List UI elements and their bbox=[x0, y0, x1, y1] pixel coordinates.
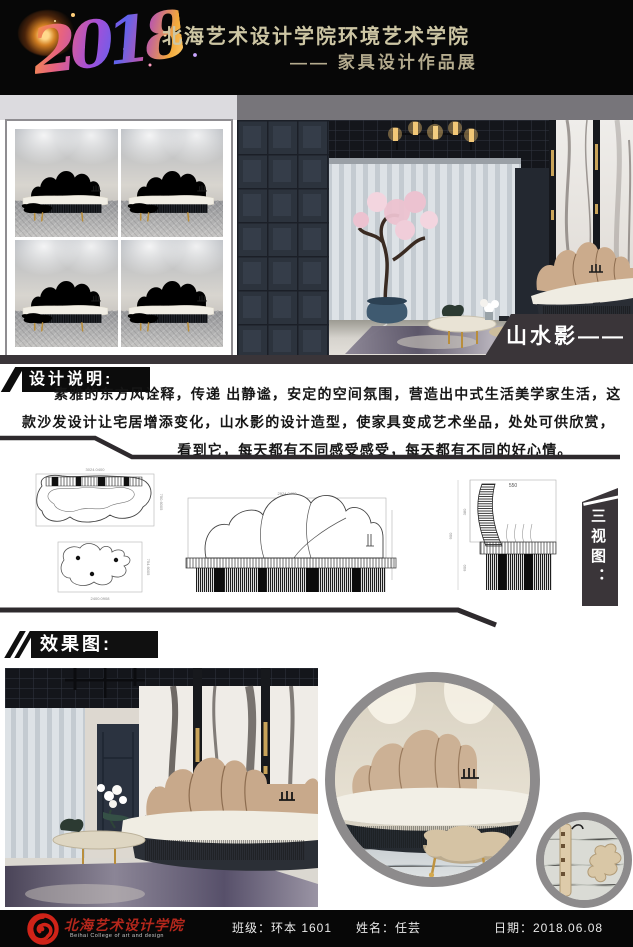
footer-school-name-en: Beihai College of art and design bbox=[70, 933, 164, 939]
seat-plan-drawing: 2400.0908 754.6005 bbox=[58, 542, 151, 601]
exhibition-subtitle: —— 家具设计作品展 bbox=[290, 48, 478, 73]
footer-class-field: 班级：环本 1601 bbox=[232, 910, 332, 947]
footer-name-field: 姓名：任芸 bbox=[356, 910, 421, 947]
side-view-drawing: 550 900 380 600 bbox=[448, 480, 556, 590]
svg-text:3024.0400: 3024.0400 bbox=[86, 467, 106, 472]
school-logo-icon bbox=[26, 912, 60, 946]
footer-school-name-cn: 北海艺术设计学院 bbox=[64, 915, 184, 935]
design-notes-line2: 款沙发设计让宅居增添变化，山水影的设计造型，使家具变成艺术坐品，处处可供欣赏， bbox=[22, 412, 615, 432]
sofa-detail-circle bbox=[325, 672, 540, 887]
svg-text:600: 600 bbox=[462, 564, 467, 571]
sofa-render-tan-2 bbox=[15, 240, 118, 348]
project-name-text: 山水影—— bbox=[492, 320, 626, 350]
footer-date-field: 日期：2018.06.08 bbox=[494, 910, 603, 947]
sofa-render-gray-2 bbox=[121, 240, 224, 348]
final-scene bbox=[5, 668, 318, 907]
final-interior-render bbox=[5, 668, 318, 907]
svg-text:2400.0908: 2400.0908 bbox=[91, 596, 111, 601]
side-profile-scene bbox=[544, 820, 624, 900]
three-views-label: 三视图： bbox=[582, 486, 618, 606]
svg-text:380: 380 bbox=[462, 508, 467, 515]
plan-view-drawing: 3024.0400 750.6005 bbox=[36, 467, 164, 526]
design-notes-slash-icon bbox=[1, 367, 24, 392]
renders-label: 效果图: bbox=[31, 631, 158, 658]
poster-header: 2018 北海艺术设计学院环境艺术学院 —— 家具设计作品展 bbox=[0, 0, 633, 95]
section-divider-bar bbox=[0, 355, 633, 364]
band-left bbox=[0, 95, 237, 120]
svg-text:754.6005: 754.6005 bbox=[146, 559, 151, 576]
svg-text:900: 900 bbox=[448, 532, 453, 539]
poster-footer: 北海艺术设计学院 Beihai College of art and desig… bbox=[0, 910, 633, 947]
project-name-label: 山水影—— bbox=[485, 314, 633, 356]
product-variants-grid bbox=[15, 129, 223, 347]
exhibition-poster: 2018 北海艺术设计学院环境艺术学院 —— 家具设计作品展 bbox=[0, 0, 633, 947]
school-title: 北海艺术设计学院环境艺术学院 bbox=[162, 20, 470, 49]
three-views-label-text: 三视图： bbox=[592, 508, 608, 588]
svg-text:550: 550 bbox=[509, 483, 518, 489]
three-view-drawings: 3024.0400 750.6005 2400.0908 754.6005 29… bbox=[0, 462, 633, 607]
sofa-render-gray-1 bbox=[15, 129, 118, 237]
band-right bbox=[237, 95, 633, 120]
product-variants-frame bbox=[5, 119, 233, 357]
sofa-detail-scene bbox=[335, 682, 530, 877]
front-view-drawing: 2924.0400 bbox=[186, 491, 396, 592]
design-notes-line3: 看到它，每天都有不同感受感受，每天都有不同的好心情。 bbox=[130, 440, 620, 460]
svg-text:750.6005: 750.6005 bbox=[159, 494, 164, 511]
design-notes-line1: 素雅的东方风诠释，传递 出静谧，安定的空间氛围，营造出中式生活美学家生活，这 bbox=[54, 384, 622, 404]
renders-divider-line bbox=[0, 606, 633, 628]
side-profile-circle bbox=[536, 812, 632, 908]
sofa-render-tan-1 bbox=[121, 129, 224, 237]
